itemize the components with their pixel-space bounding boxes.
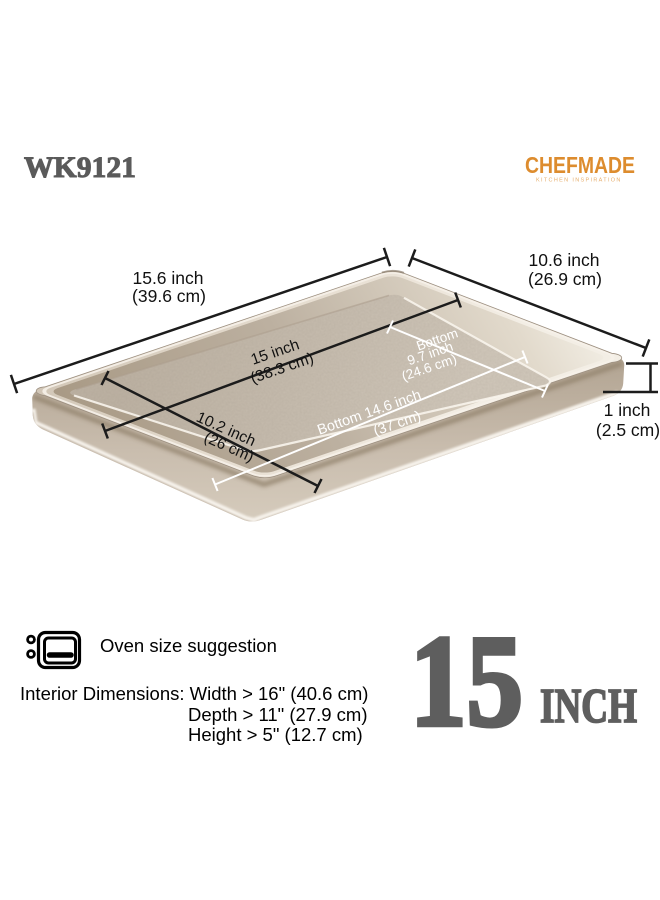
svg-text:15.6 inch: 15.6 inch: [132, 268, 203, 288]
svg-text:1 inch: 1 inch: [604, 400, 651, 420]
svg-text:(39.6 cm): (39.6 cm): [132, 286, 206, 306]
svg-text:Oven size suggestion: Oven size suggestion: [100, 635, 277, 656]
svg-text:(26.9 cm): (26.9 cm): [528, 269, 602, 289]
svg-text:10.6 inch: 10.6 inch: [528, 250, 599, 270]
svg-text:(2.5 cm): (2.5 cm): [596, 420, 660, 440]
svg-text:Interior Dimensions: Width > 1: Interior Dimensions: Width > 16" (40.6 c…: [20, 683, 368, 704]
svg-text:15: 15: [410, 609, 523, 754]
svg-text:WK9121: WK9121: [24, 151, 136, 184]
svg-text:Height > 5" (12.7 cm): Height > 5" (12.7 cm): [188, 724, 363, 745]
svg-text:Depth > 11" (27.9 cm): Depth > 11" (27.9 cm): [188, 704, 368, 725]
svg-text:CHEFMADE: CHEFMADE: [525, 152, 635, 178]
svg-text:INCH: INCH: [540, 678, 637, 733]
svg-text:KITCHEN INSPIRATION: KITCHEN INSPIRATION: [536, 178, 622, 184]
